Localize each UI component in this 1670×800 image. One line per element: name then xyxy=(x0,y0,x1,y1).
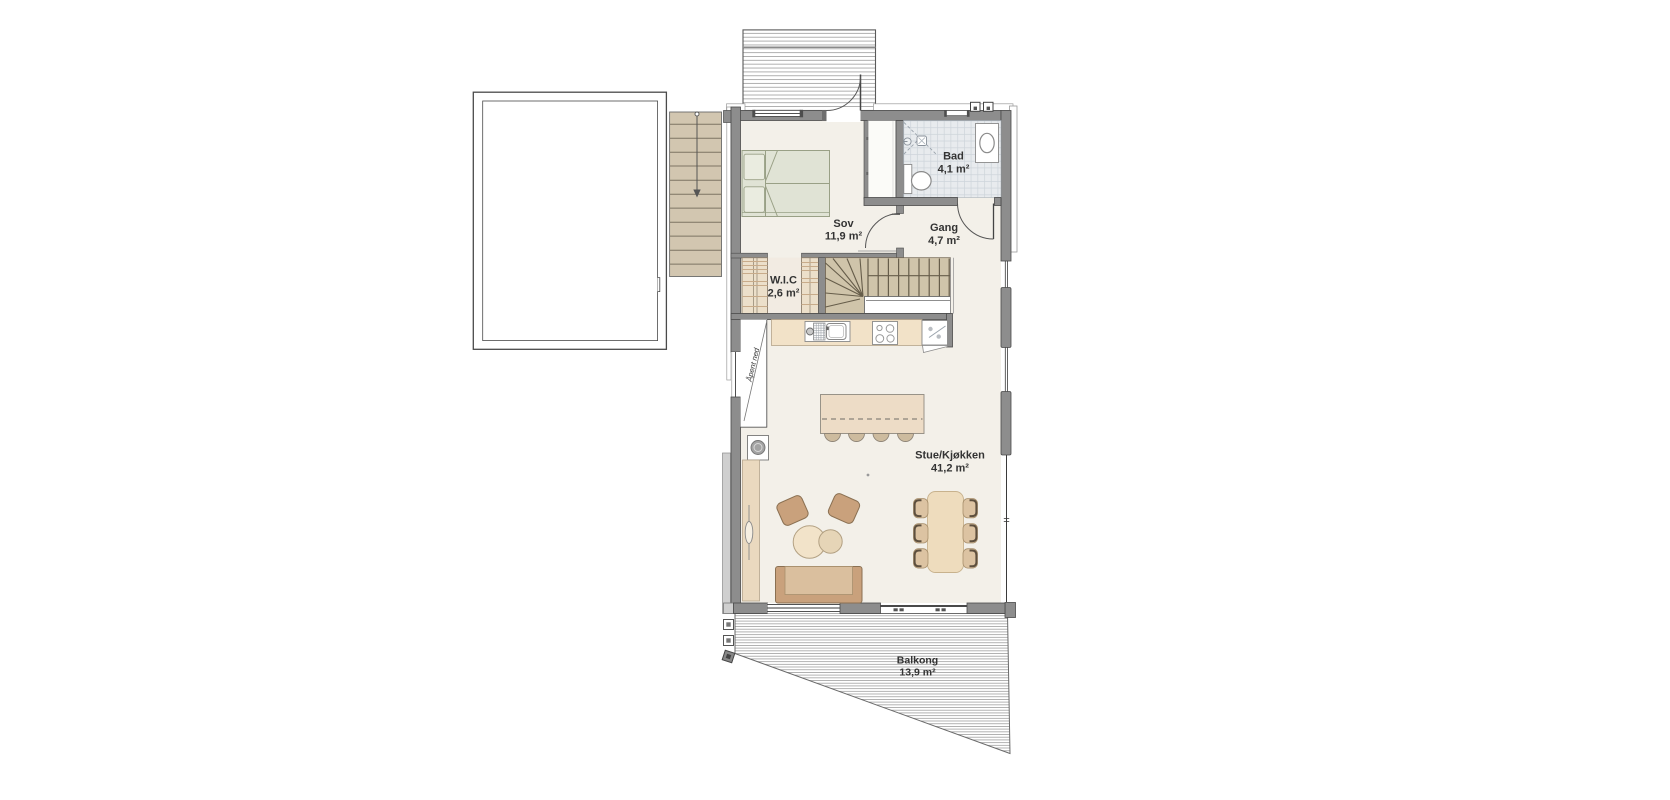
svg-text:2,6 m²: 2,6 m² xyxy=(768,288,800,300)
svg-text:Balkong: Balkong xyxy=(897,655,938,667)
svg-text:Stue/Kjøkken: Stue/Kjøkken xyxy=(915,450,985,462)
svg-text:41,2 m²: 41,2 m² xyxy=(931,463,969,475)
svg-text:4,1 m²: 4,1 m² xyxy=(938,164,970,176)
svg-text:Bad: Bad xyxy=(943,151,964,163)
svg-text:11,9 m²: 11,9 m² xyxy=(825,231,863,243)
svg-text:Gang: Gang xyxy=(930,222,958,234)
svg-text:4,7 m²: 4,7 m² xyxy=(928,235,960,247)
svg-text:Sov: Sov xyxy=(833,218,854,230)
svg-text:W.I.C: W.I.C xyxy=(770,275,797,287)
svg-text:13,9 m²: 13,9 m² xyxy=(899,667,936,679)
